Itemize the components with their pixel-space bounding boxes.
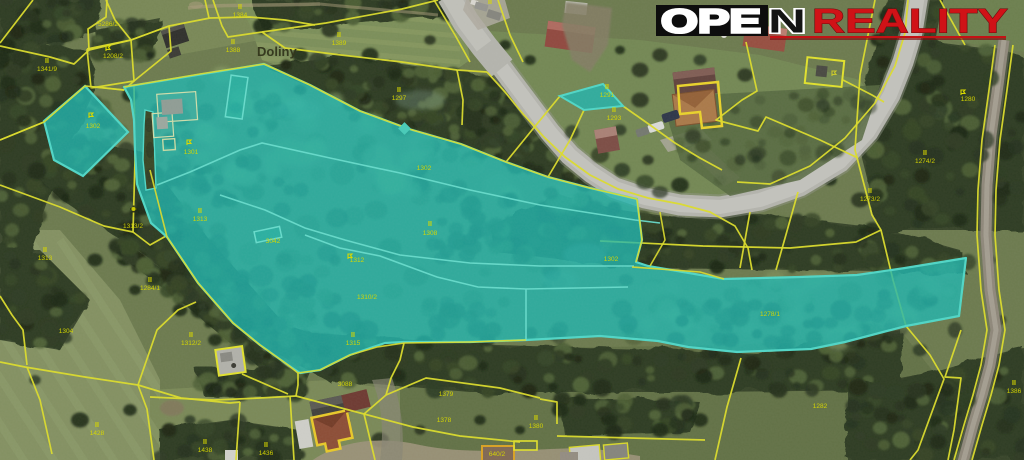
svg-text:1308: 1308 xyxy=(423,230,438,237)
svg-text:1208/2: 1208/2 xyxy=(103,53,123,60)
svg-text:1293: 1293 xyxy=(607,115,622,122)
svg-text:II: II xyxy=(337,32,341,39)
svg-text:Doliny: Doliny xyxy=(257,44,297,59)
svg-text:1274/2: 1274/2 xyxy=(915,158,935,165)
svg-text:1297: 1297 xyxy=(392,95,407,102)
svg-text:1380: 1380 xyxy=(529,423,544,430)
svg-text:II: II xyxy=(231,39,235,46)
svg-text:1284/1: 1284/1 xyxy=(140,285,160,292)
svg-text:II: II xyxy=(45,58,49,65)
svg-text:II: II xyxy=(351,332,355,339)
svg-text:II: II xyxy=(203,439,207,446)
svg-text:II: II xyxy=(148,277,152,284)
svg-text:1278/1: 1278/1 xyxy=(760,311,780,318)
svg-text:II: II xyxy=(428,221,432,228)
svg-text:1313: 1313 xyxy=(193,216,208,223)
svg-text:1310/2: 1310/2 xyxy=(357,294,377,301)
svg-text:II: II xyxy=(534,415,538,422)
svg-text:1302: 1302 xyxy=(417,165,432,172)
svg-text:1428: 1428 xyxy=(90,430,105,437)
svg-text:II: II xyxy=(612,107,616,114)
svg-text:II: II xyxy=(189,332,193,339)
svg-text:II: II xyxy=(923,150,927,157)
svg-text:1389: 1389 xyxy=(332,40,347,47)
svg-text:3042: 3042 xyxy=(266,238,281,245)
svg-text:1312/2: 1312/2 xyxy=(181,340,201,347)
svg-text:II: II xyxy=(264,442,268,449)
svg-text:640/2: 640/2 xyxy=(489,451,506,458)
svg-text:OPE: OPE xyxy=(661,3,761,40)
svg-text:II: II xyxy=(238,4,242,11)
svg-text:1273/2: 1273/2 xyxy=(860,196,880,203)
svg-text:1384: 1384 xyxy=(233,12,248,19)
svg-text:1315: 1315 xyxy=(346,340,361,347)
svg-text:1313: 1313 xyxy=(38,255,53,262)
svg-text:II: II xyxy=(43,247,47,254)
svg-text:II: II xyxy=(198,208,202,215)
svg-text:1378: 1378 xyxy=(437,417,452,424)
svg-text:1282: 1282 xyxy=(813,403,828,410)
svg-text:1313/2: 1313/2 xyxy=(123,223,143,230)
svg-text:1341/9: 1341/9 xyxy=(37,66,57,73)
svg-text:1302: 1302 xyxy=(604,256,619,263)
svg-text:N: N xyxy=(768,3,806,40)
svg-text:II: II xyxy=(397,87,401,94)
svg-text:1302: 1302 xyxy=(86,123,101,130)
svg-text:1312: 1312 xyxy=(350,257,365,264)
svg-text:1386: 1386 xyxy=(1007,388,1022,395)
svg-text:1388: 1388 xyxy=(226,47,241,54)
svg-text:5286/2: 5286/2 xyxy=(98,21,118,28)
svg-text:1280: 1280 xyxy=(961,96,976,103)
svg-text:II: II xyxy=(1012,380,1016,387)
svg-text:1301: 1301 xyxy=(184,149,199,156)
svg-text:II: II xyxy=(95,422,99,429)
svg-text:REALITY: REALITY xyxy=(812,3,1008,41)
svg-text:II: II xyxy=(868,188,872,195)
svg-text:1438: 1438 xyxy=(198,447,213,454)
svg-text:II: II xyxy=(488,0,492,6)
svg-text:1291: 1291 xyxy=(600,92,615,99)
svg-text:3088: 3088 xyxy=(338,381,353,388)
svg-text:1436: 1436 xyxy=(259,450,274,457)
svg-text:1379: 1379 xyxy=(439,391,454,398)
svg-text:1304: 1304 xyxy=(59,328,74,335)
svg-text:II: II xyxy=(605,84,609,91)
